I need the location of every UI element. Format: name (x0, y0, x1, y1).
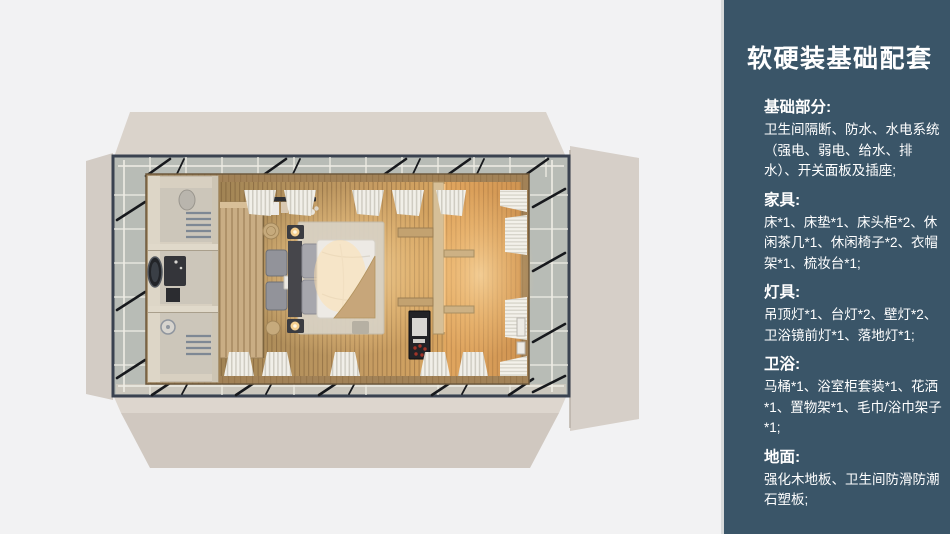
floorplan-svg (0, 0, 718, 534)
bathroom-block (148, 176, 218, 382)
shelf (444, 250, 474, 257)
wood-partition (220, 202, 264, 358)
panel-title: 软硬装基础配套 (747, 44, 933, 75)
headboard (288, 241, 302, 317)
desk (398, 228, 433, 237)
shelf (398, 298, 433, 306)
toilet (179, 190, 195, 210)
section-lighting-heading: 灯具: (764, 284, 933, 302)
section-basics-heading: 基础部分: (764, 99, 933, 117)
floor-cushion (352, 321, 369, 334)
section-lighting: 灯具: 吊顶灯*1、台灯*2、壁灯*2、卫浴镜前灯*1、落地灯*1; (764, 284, 933, 346)
section-lighting-body: 吊顶灯*1、台灯*2、壁灯*2、卫浴镜前灯*1、落地灯*1; (764, 305, 942, 346)
floorplan-render (0, 0, 718, 534)
section-flooring: 地面: 强化木地板、卫生间防滑防潮石塑板; (764, 449, 933, 511)
section-basics: 基础部分: 卫生间隔断、防水、水电系统（强电、弱电、给水、排水）、开关面板及插座… (764, 99, 933, 182)
info-panel: 软硬装基础配套 基础部分: 卫生间隔断、防水、水电系统（强电、弱电、给水、排水）… (721, 0, 950, 534)
section-bathroom-heading: 卫浴: (764, 356, 933, 374)
section-furniture-heading: 家具: (764, 192, 933, 210)
section-bathroom: 卫浴: 马桶*1、浴室柜套装*1、花洒*1、置物架*1、毛巾/浴巾架子*1; (764, 356, 933, 439)
pouf-top (263, 223, 279, 239)
section-bathroom-body: 马桶*1、浴室柜套装*1、花洒*1、置物架*1、毛巾/浴巾架子*1; (764, 377, 942, 439)
section-flooring-body: 强化木地板、卫生间防滑防潮石塑板; (764, 470, 942, 511)
pouf-bottom (266, 321, 280, 335)
shower (161, 320, 175, 334)
minibar (409, 311, 430, 359)
wall-panel (517, 318, 525, 336)
section-furniture: 家具: 床*1、床垫*1、床头柜*2、休闲茶几*1、休闲椅子*2、衣帽架*1、梳… (764, 192, 933, 275)
section-basics-body: 卫生间隔断、防水、水电系统（强电、弱电、给水、排水）、开关面板及插座; (764, 120, 942, 182)
wall-panel (517, 342, 525, 354)
section-flooring-heading: 地面: (764, 449, 933, 467)
section-furniture-body: 床*1、床垫*1、床头柜*2、休闲茶几*1、休闲椅子*2、衣帽架*1、梳妆台*1… (764, 213, 942, 275)
spec-sections: 基础部分: 卫生间隔断、防水、水电系统（强电、弱电、给水、排水）、开关面板及插座… (764, 99, 933, 511)
shelf (444, 306, 474, 313)
